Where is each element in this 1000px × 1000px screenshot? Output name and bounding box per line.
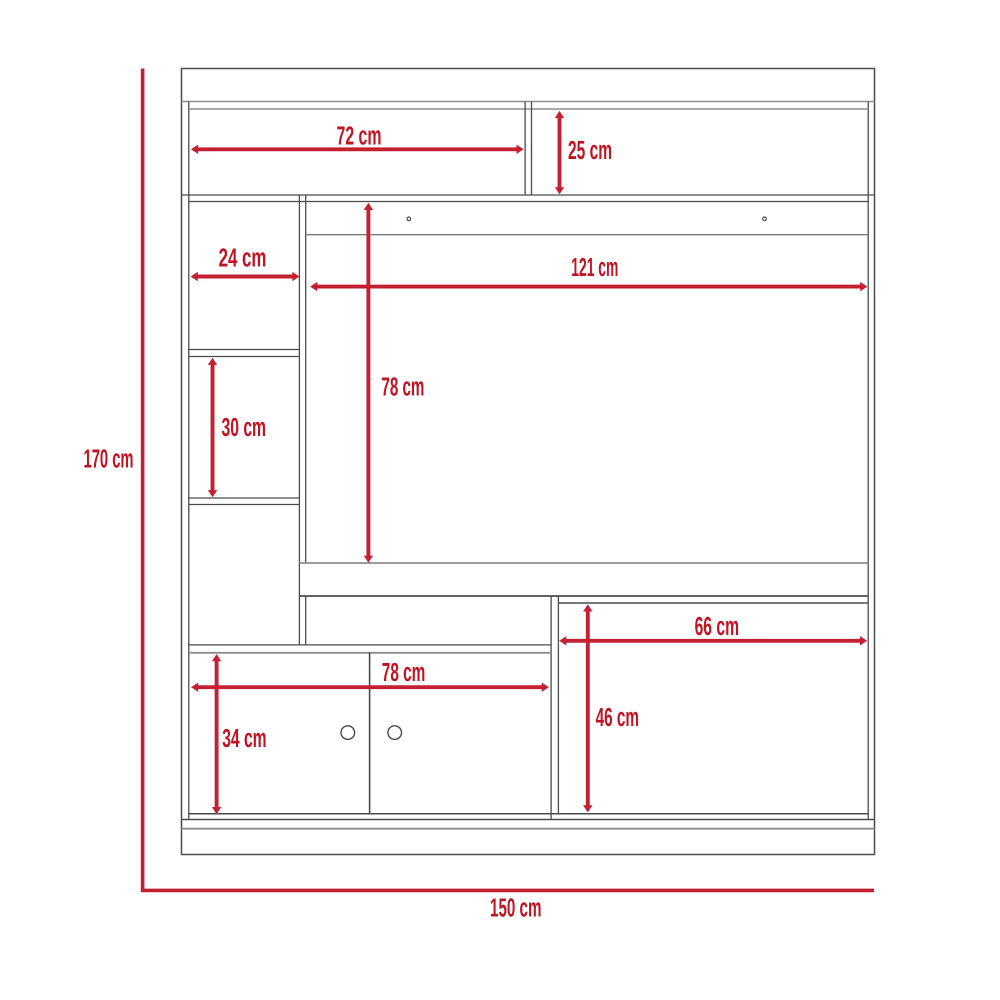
- svg-text:46 cm: 46 cm: [596, 702, 639, 732]
- svg-text:150 cm: 150 cm: [490, 893, 542, 923]
- svg-text:170 cm: 170 cm: [84, 444, 134, 474]
- svg-text:78 cm: 78 cm: [381, 372, 424, 402]
- svg-text:34 cm: 34 cm: [222, 723, 266, 753]
- svg-text:24 cm: 24 cm: [219, 242, 267, 272]
- svg-text:78 cm: 78 cm: [382, 657, 426, 687]
- svg-text:66 cm: 66 cm: [695, 611, 739, 641]
- svg-text:121 cm: 121 cm: [571, 252, 618, 282]
- svg-text:25 cm: 25 cm: [568, 135, 612, 165]
- svg-text:72 cm: 72 cm: [337, 120, 382, 150]
- svg-text:30 cm: 30 cm: [222, 412, 267, 442]
